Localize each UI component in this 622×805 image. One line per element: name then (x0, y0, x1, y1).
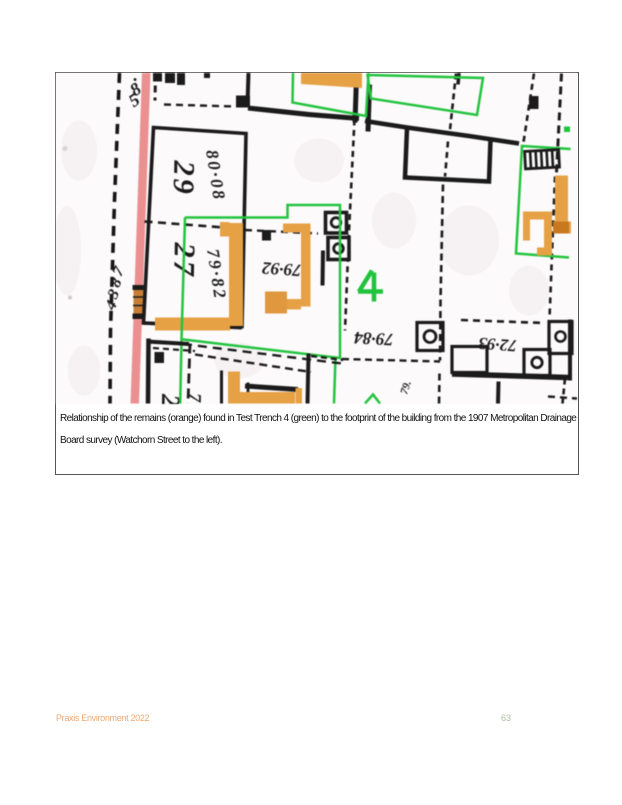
svg-text:2: 2 (156, 393, 185, 404)
svg-text:29: 29 (167, 159, 201, 197)
svg-text:79·92: 79·92 (261, 258, 302, 281)
svg-text:79·84: 79·84 (353, 328, 394, 350)
svg-text:7: 7 (185, 393, 205, 403)
svg-text:72·93: 72·93 (477, 334, 517, 356)
